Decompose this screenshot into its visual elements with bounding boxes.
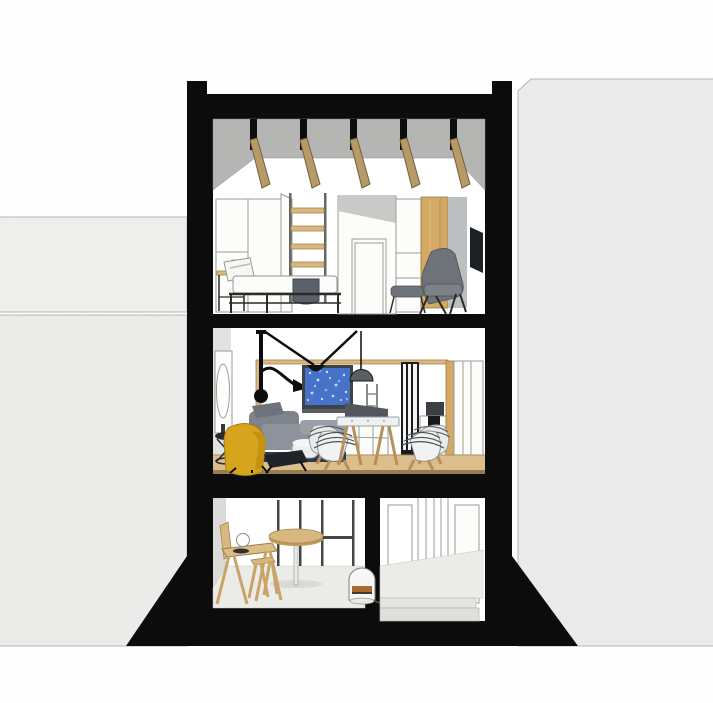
entry-step-lower [380, 608, 479, 621]
right-wall [485, 94, 512, 564]
gray-blanket [293, 279, 319, 304]
loft-door [352, 239, 386, 314]
parapet-left [187, 81, 207, 95]
floor-slab-upper [213, 314, 485, 328]
kitchen-upper-cabinet [426, 402, 444, 416]
ottoman [391, 286, 424, 297]
floor-loft-bedroom [213, 119, 485, 314]
floor-ground [213, 498, 485, 621]
art-canvas [305, 368, 350, 405]
left-wall [187, 94, 213, 564]
floor-slab-lower [213, 474, 485, 498]
wall-tv [470, 227, 483, 273]
wood-beam [256, 360, 448, 364]
studio-room [213, 498, 386, 608]
floor-living-dining [213, 328, 485, 476]
lamp-shade-disc [254, 389, 268, 403]
entry-hall [380, 498, 485, 621]
round-wall-mirror [217, 364, 230, 418]
entry-step-upper [380, 598, 476, 608]
desk-pad [233, 549, 249, 554]
roof-slab [187, 94, 512, 119]
desk-sphere-lamp [237, 534, 250, 547]
lamp-amber-band [352, 586, 372, 592]
mattress [233, 276, 337, 293]
section-illustration [0, 0, 713, 703]
stair-nook [338, 196, 396, 314]
parapet-right [492, 81, 512, 95]
